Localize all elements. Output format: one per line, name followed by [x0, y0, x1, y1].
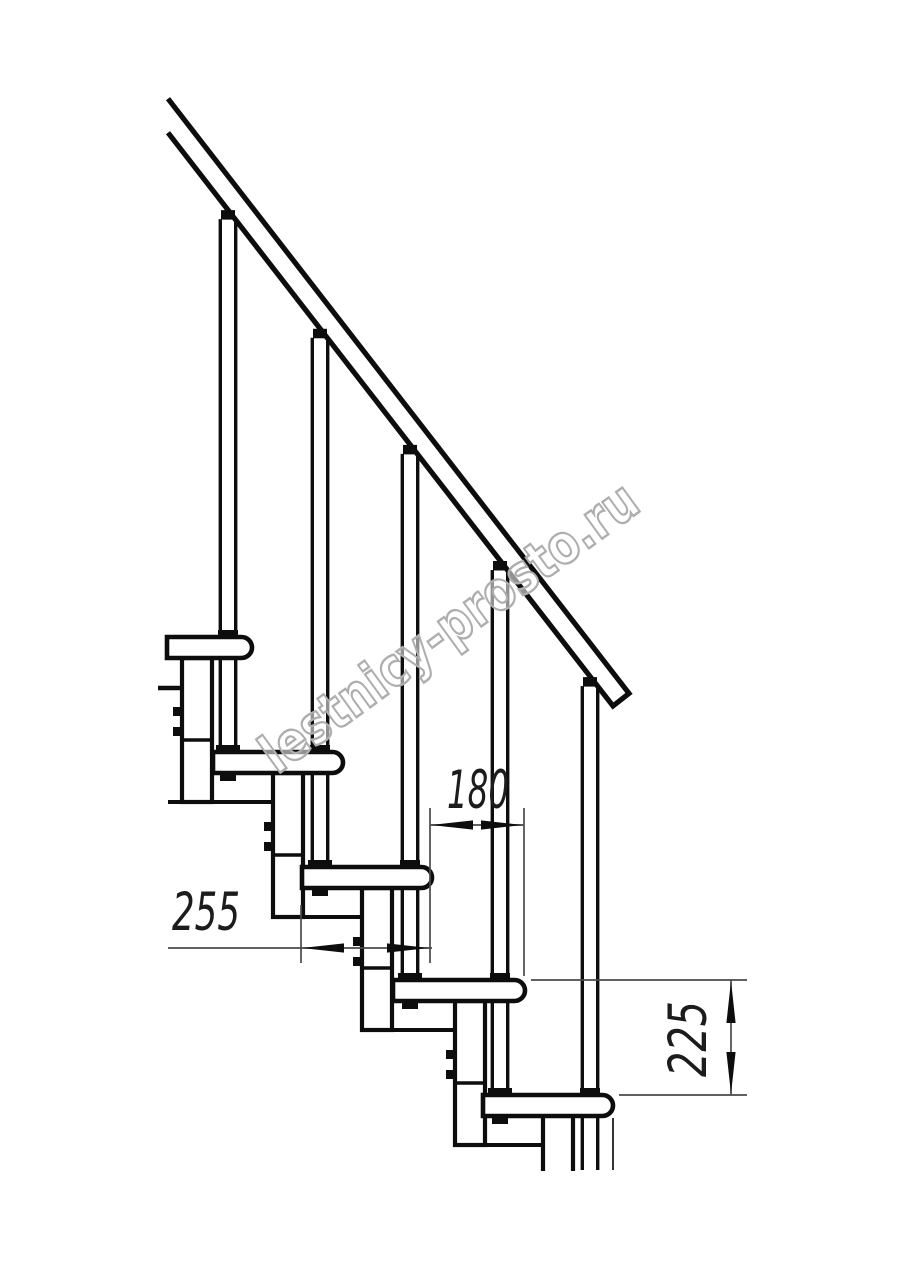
baluster-under-nut [402, 1001, 418, 1009]
module-bolt [353, 957, 363, 966]
module-bolt [264, 842, 274, 851]
dim-arrow-right [387, 943, 429, 952]
baluster-rail-collar [583, 677, 597, 687]
support-module [455, 1001, 485, 1145]
module-bolt [353, 937, 363, 946]
dim-tread-depth-label: 255 [172, 882, 240, 943]
support-module [182, 658, 212, 802]
dim-step-offset-label: 180 [447, 760, 509, 821]
dim-arrow-up [726, 981, 735, 1023]
staircase-technical-drawing: 255 180 225 lestnicy-prosto.ru [0, 0, 914, 1280]
baluster-step-collar [218, 630, 238, 638]
baluster-base-flange [488, 1088, 512, 1096]
baluster-base-flange [216, 745, 240, 753]
module-bolt [173, 727, 183, 736]
baluster-step-collar [580, 1088, 600, 1096]
dim-rise-label: 225 [658, 1001, 719, 1077]
baluster-rail-collar [221, 210, 235, 220]
dim-arrow-right [481, 820, 523, 829]
baluster-under-nut [312, 888, 328, 896]
dim-arrow-down [726, 1052, 735, 1094]
baluster-rail-collar [403, 445, 417, 455]
baluster-rail-collar [313, 329, 327, 339]
baluster-under-nut [220, 773, 236, 781]
dim-arrow-left [302, 943, 344, 952]
baluster-base-flange [308, 860, 332, 868]
module-bolt [173, 707, 183, 716]
step-tread [483, 1095, 613, 1116]
module-bolt [446, 1070, 456, 1079]
watermark-text: lestnicy-prosto.ru [248, 469, 651, 786]
baluster-under-nut [492, 1116, 508, 1124]
module-bolt [446, 1050, 456, 1059]
drawing-page: 255 180 225 lestnicy-prosto.ru [0, 0, 914, 1280]
module-bolt [264, 822, 274, 831]
baluster-base-flange [398, 973, 422, 981]
support-module [362, 888, 392, 1030]
support-module [273, 773, 303, 917]
dim-arrow-left [431, 820, 473, 829]
baluster-step-collar [400, 860, 420, 868]
step-tread [302, 867, 432, 888]
baluster-step-collar [490, 973, 510, 981]
step-tread [393, 980, 525, 1001]
step-tread [167, 637, 252, 658]
